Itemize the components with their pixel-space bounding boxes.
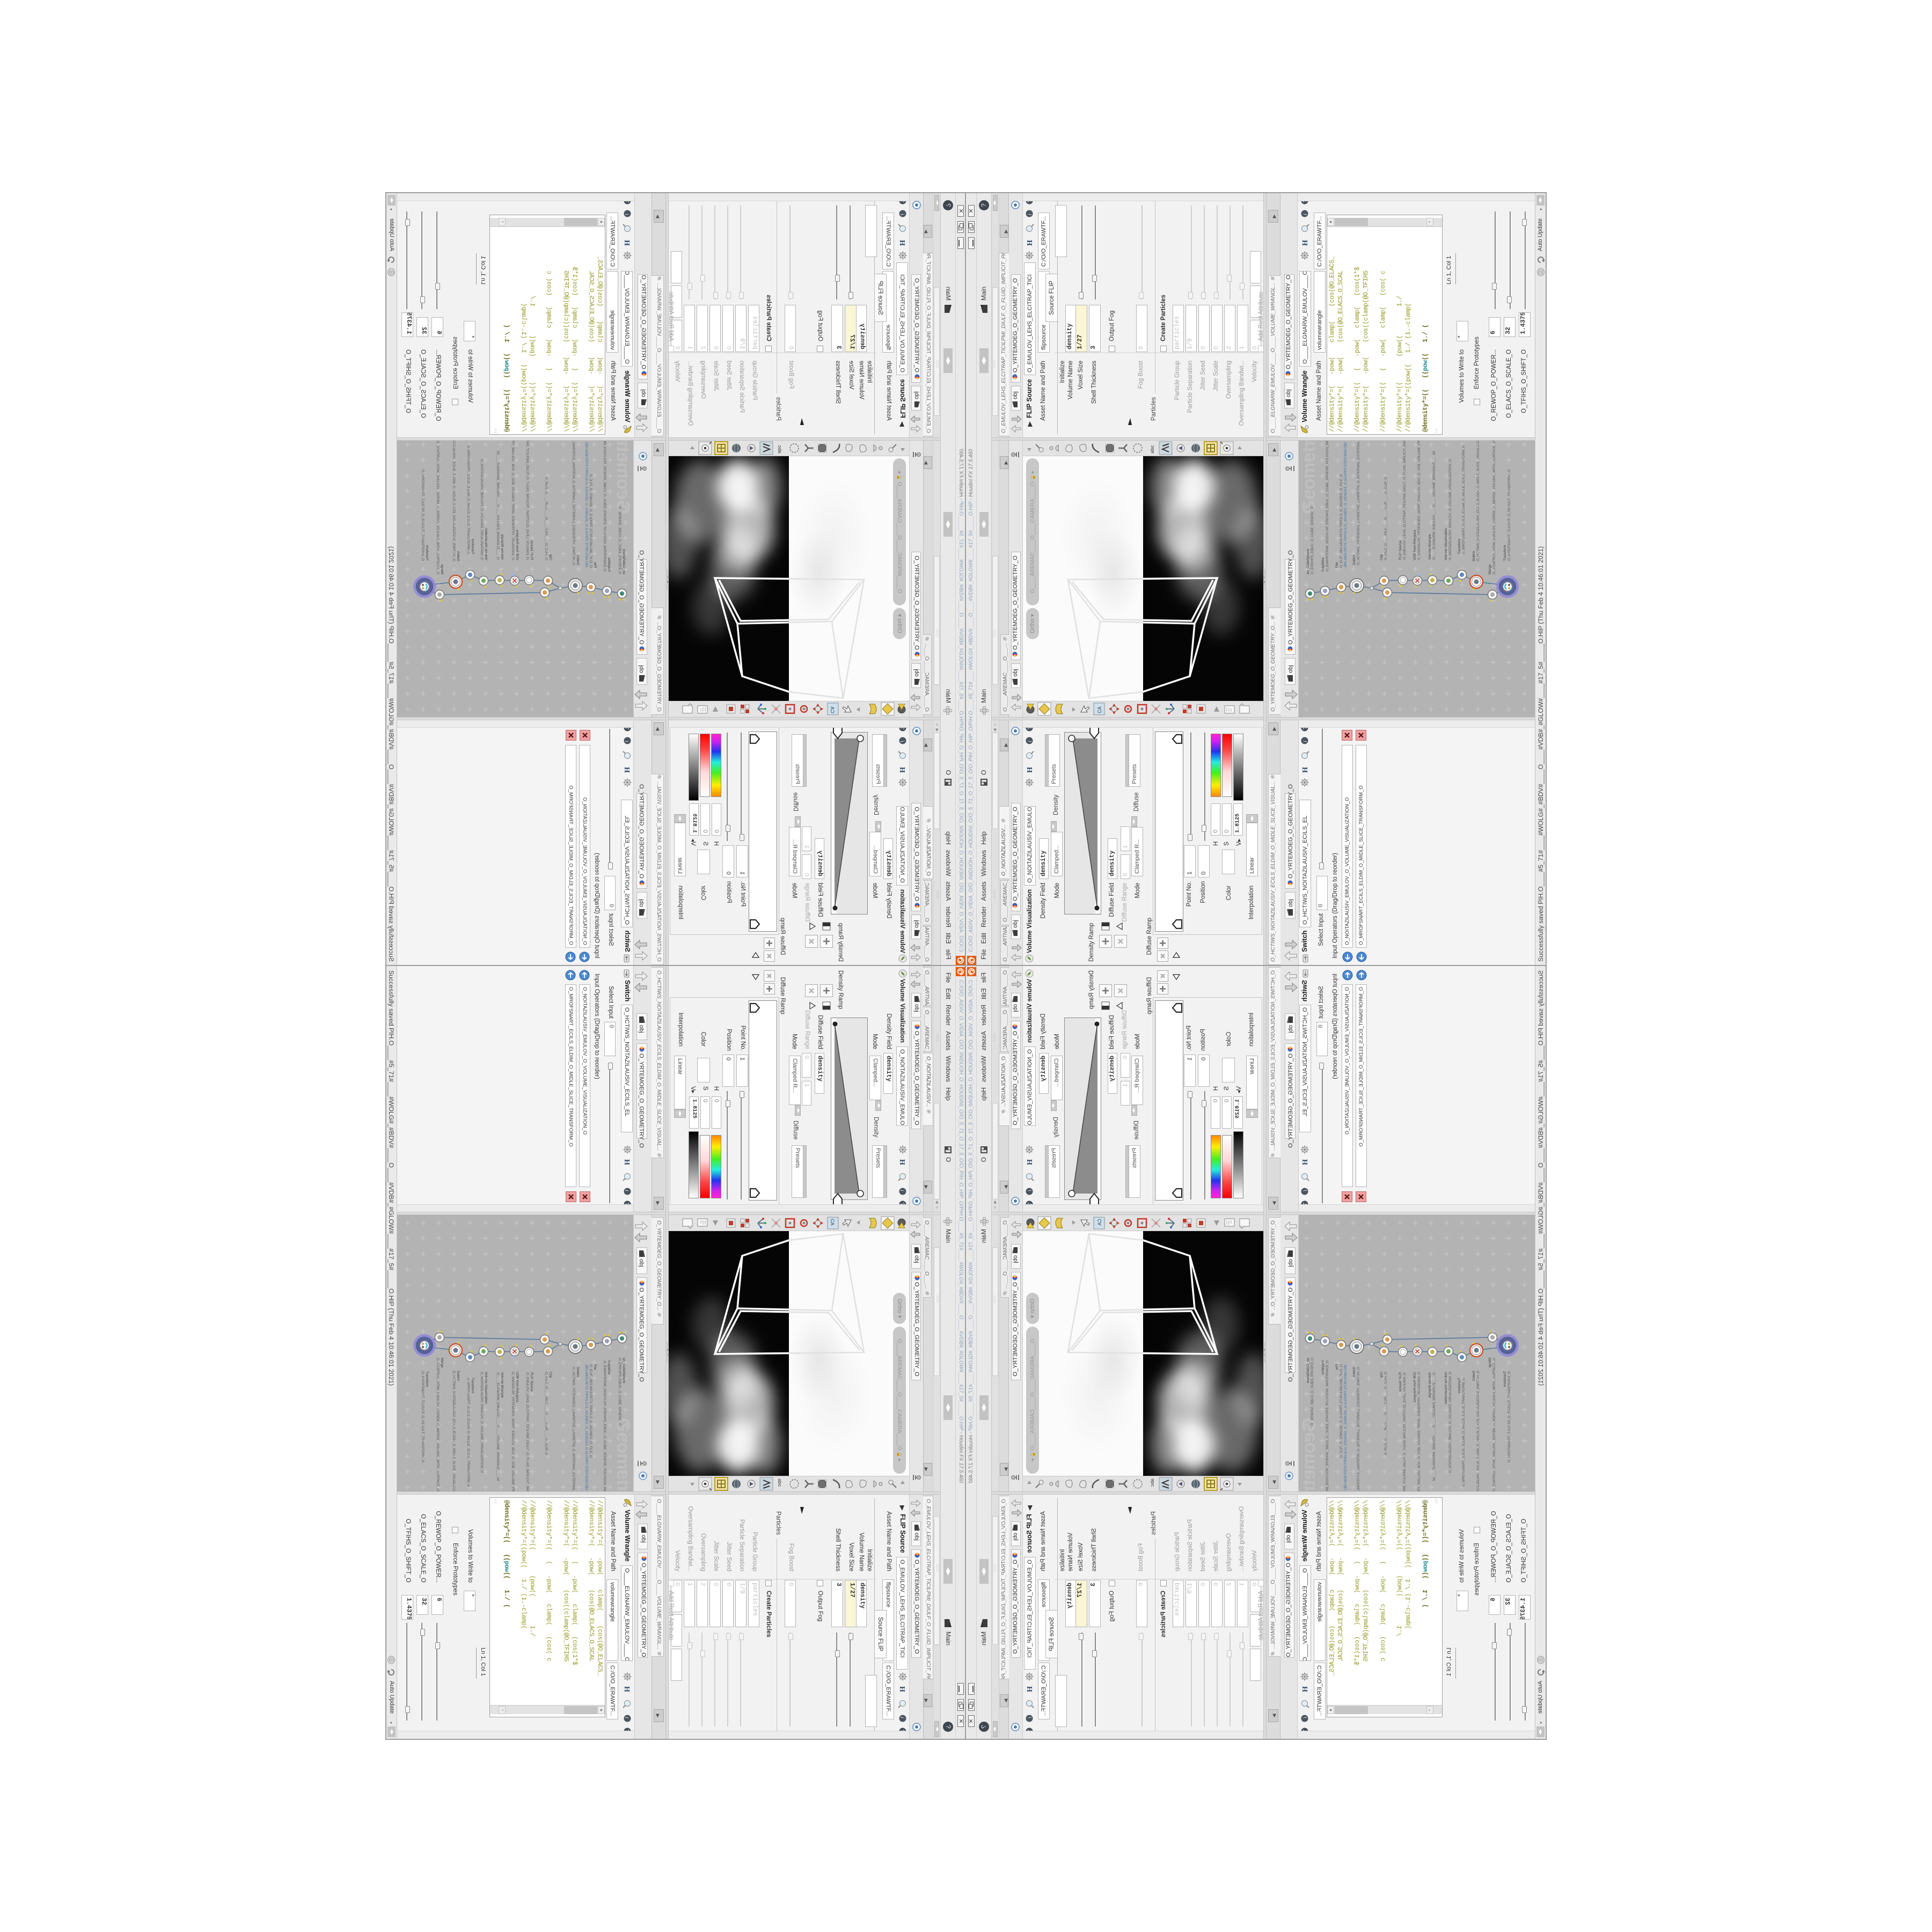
svg-text:Volume Wrangle: Volume Wrangle	[1428, 1372, 1432, 1398]
svg-text:H: H	[1026, 767, 1034, 773]
svg-text:H: H	[898, 767, 906, 773]
svg-text:O_HCTIWS_NOITAZILAUSIV_ECILS_E: O_HCTIWS_NOITAZILAUSIV_ECILS_ELDIM_O_MID…	[452, 1371, 456, 1491]
svg-text:O_MROFSNART_TLUSER_O_RESULT_TR: O_MROFSNART_TLUSER_O_RESULT_TRANSFORM_O	[1507, 1371, 1511, 1462]
svg-text:H: H	[1301, 240, 1309, 246]
svg-text:O_MROFSNART_ECILS_ELDIM_O_MIDL: O_MROFSNART_ECILS_ELDIM_O_MIDLE_SLICE_TR…	[1462, 445, 1466, 554]
svg-text:abc: abc	[1150, 1479, 1155, 1487]
svg-text:an_CubeSphere: an_CubeSphere	[622, 548, 626, 574]
svg-text:Geometry: Geometry	[613, 1418, 633, 1491]
svg-text:Volume Visualization: Volume Visualization	[484, 1372, 488, 1404]
svg-text:Switch: Switch	[1352, 554, 1356, 565]
svg-text:O_EMULOV_LEHS_ELCITRAP_TICILPM: O_EMULOV_LEHS_ELCITRAP_TICILPMI_DIULF_O_…	[525, 1372, 529, 1491]
svg-text:H: H	[1026, 240, 1034, 246]
svg-text:H: H	[1301, 767, 1309, 773]
svg-text:O_EMULOV_LEHS_ELCITRAP_TICILPM: O_EMULOV_LEHS_ELCITRAP_TICILPMI_DIULF_O_…	[1403, 441, 1407, 560]
svg-text:i: i	[1302, 1717, 1308, 1718]
svg-text:O_PILC_O____PILC____O____CLIP_: O_PILC_O____PILC____O____CLIP____O_CLIP_…	[1384, 1372, 1388, 1455]
svg-text:H: H	[898, 1686, 906, 1692]
svg-text:O_HCTIWS_NOITAZILAUSIV_ECILS_E: O_HCTIWS_NOITAZILAUSIV_ECILS_ELDIM_O_MID…	[1476, 1371, 1480, 1491]
svg-text:Clip: Clip	[548, 554, 552, 560]
svg-text:O_EMULOV_LEHS_ELCITRAP_TICILPM: O_EMULOV_LEHS_ELCITRAP_TICILPMI_DIULF_O_…	[1403, 1372, 1407, 1491]
svg-text:O____ELGNARW_EMULOV____O____VO: O____ELGNARW_EMULOV____O____VOLUME_WRANG…	[1432, 451, 1436, 560]
svg-text:JBO.MD3.PETS.TRPOLS.O_3SUNEG_O: JBO.MD3.PETS.TRPOLS.O_3SUNEG_O_GENUS3_O.…	[1344, 442, 1348, 568]
svg-text:Transform: Transform	[1503, 1371, 1507, 1387]
svg-text:File: File	[1335, 562, 1339, 568]
svg-text:Transform: Transform	[1458, 539, 1461, 554]
svg-text:Clip: Clip	[1380, 554, 1384, 560]
svg-text:File: File	[593, 1364, 597, 1370]
svg-text:i: i	[1027, 1190, 1033, 1191]
svg-text:i: i	[899, 1190, 905, 1191]
svg-text:O_MROFSNART_ECILS_ELDIM_O_MIDL: O_MROFSNART_ECILS_ELDIM_O_MIDLE_SLICE_TR…	[466, 445, 470, 554]
svg-text:O_MROFSNART_ECILS_ELDIM_O_MIDL: O_MROFSNART_ECILS_ELDIM_O_MIDLE_SLICE_TR…	[1462, 1378, 1466, 1487]
svg-text:abc: abc	[777, 1479, 782, 1487]
svg-text:H: H	[623, 240, 631, 246]
svg-text:O_MROFSNART_TLUSER_O_RESULT_TR: O_MROFSNART_TLUSER_O_RESULT_TRANSFORM_O	[1507, 470, 1511, 561]
svg-text:File: File	[1335, 1364, 1339, 1370]
svg-text:FLIP Source: FLIP Source	[1399, 1372, 1402, 1392]
svg-text:VDB from Polygons: VDB from Polygons	[515, 530, 519, 560]
svg-text:O_NOITAZILAUSIV_EMULOV_O_VOLUM: O_NOITAZILAUSIV_EMULOV_O_VOLUME_VISUALIZ…	[480, 459, 484, 560]
svg-text:Switch: Switch	[576, 1367, 580, 1378]
svg-text:PolyWire: PolyWire	[1321, 558, 1325, 572]
svg-text:i: i	[1302, 1190, 1308, 1191]
svg-text:O_SNOGILOP_YRTEMOEG_MORF_EMULO: O_SNOGILOP_YRTEMOEG_MORF_EMULOV_BDV_O_VD…	[1417, 441, 1421, 560]
svg-text:JBO.MD3.PETS.TRPOLS.O_3SUNEG_O: JBO.MD3.PETS.TRPOLS.O_3SUNEG_O_GENUS3_O.…	[584, 442, 588, 568]
svg-text:O_HCTIWS_YRTEMOEG_LANRETXE_LAN: O_HCTIWS_YRTEMOEG_LANRETXE_LANRETNI_O_IN…	[1357, 1367, 1360, 1491]
svg-text:O_EREHPS_EBUC_O_CUBE_SPHERE_O: O_EREHPS_EBUC_O_CUBE_SPHERE_O	[618, 1358, 621, 1425]
svg-text:H: H	[623, 1686, 631, 1692]
svg-text:i: i	[624, 1190, 630, 1191]
svg-text:O_ELIF_JBO.MD3.PETS.TRPOLS_O_3: O_ELIF_JBO.MD3.PETS.TRPOLS_O_3SUNEG_O_FI…	[589, 1364, 592, 1458]
svg-text:O_PILC_O____PILC____O____CLIP_: O_PILC_O____PILC____O____CLIP____O_CLIP_…	[544, 477, 548, 560]
svg-text:H: H	[1026, 1159, 1034, 1165]
svg-text:an_CubeSphere: an_CubeSphere	[622, 1358, 626, 1384]
svg-text:FLIP Source: FLIP Source	[530, 1372, 533, 1392]
svg-text:i: i	[899, 1717, 905, 1718]
svg-text:O_NOITAZILAUSIV_EMULOV_O_VOLUM: O_NOITAZILAUSIV_EMULOV_O_VOLUME_VISUALIZ…	[1448, 459, 1452, 560]
svg-text:O_EREHPS_EBUC_O_CUBE_SPHERE_O: O_EREHPS_EBUC_O_CUBE_SPHERE_O	[1311, 1358, 1314, 1425]
svg-text:i: i	[1027, 741, 1033, 742]
svg-text:O____ELGNARW_EMULOV____O____VO: O____ELGNARW_EMULOV____O____VOLUME_WRANG…	[496, 451, 500, 560]
svg-text:Volume Visualization: Volume Visualization	[484, 528, 488, 560]
svg-text:i: i	[624, 214, 630, 215]
svg-text:O_HCTIWS_NOITAZILAUSIV_ECILS_E: O_HCTIWS_NOITAZILAUSIV_ECILS_ELDIM_O_MID…	[1476, 441, 1480, 561]
svg-text:H: H	[623, 767, 631, 773]
svg-text:an_CubeSphere: an_CubeSphere	[1306, 548, 1310, 574]
svg-text:i: i	[1027, 1717, 1033, 1718]
svg-text:O_EMARFERIW_NOGYLOP_EREHPS_EBU: O_EMARFERIW_NOGYLOP_EREHPS_EBUC_O_CUBE_S…	[1326, 441, 1329, 572]
svg-text:Volume Visualization: Volume Visualization	[1444, 1372, 1448, 1404]
svg-text:CA: CA	[830, 1219, 835, 1226]
svg-text:O_EMARFERIW_NOGYLOP_EREHPS_EBU: O_EMARFERIW_NOGYLOP_EREHPS_EBUC_O_CUBE_S…	[603, 441, 606, 572]
svg-text:O_ECAFRUS_HTIW_EMULOV_EGREM_O_: O_ECAFRUS_HTIW_EMULOV_EGREM_O_MERGE_VOLU…	[436, 1358, 440, 1491]
svg-text:Geometry: Geometry	[1299, 1418, 1319, 1491]
svg-text:Volume Wrangle: Volume Wrangle	[1428, 534, 1432, 560]
svg-text:O_HCTIWS_YRTEMOEG_LANRETXE_LAN: O_HCTIWS_YRTEMOEG_LANRETXE_LANRETNI_O_IN…	[572, 1367, 575, 1491]
svg-text:i: i	[624, 741, 630, 742]
svg-text:PolyWire: PolyWire	[607, 1360, 611, 1374]
svg-text:Switch: Switch	[456, 551, 460, 561]
svg-text:H: H	[1301, 1686, 1309, 1692]
svg-text:O_NOITAZILAUSIV_EMULOV_O_VOLUM: O_NOITAZILAUSIV_EMULOV_O_VOLUME_VISUALIZ…	[1448, 1372, 1452, 1473]
svg-text:Merge: Merge	[1488, 564, 1492, 574]
svg-text:abc: abc	[777, 445, 782, 453]
svg-text:O_SNOGILOP_YRTEMOEG_MORF_EMULO: O_SNOGILOP_YRTEMOEG_MORF_EMULOV_BDV_O_VD…	[511, 441, 515, 560]
svg-text:O____ELGNARW_EMULOV____O____VO: O____ELGNARW_EMULOV____O____VOLUME_WRANG…	[1432, 1372, 1436, 1481]
svg-text:Switch: Switch	[456, 1371, 460, 1381]
svg-text:PolyWire: PolyWire	[607, 558, 611, 572]
svg-text:i: i	[1027, 214, 1033, 215]
svg-text:H: H	[898, 240, 906, 246]
svg-text:O_HCTIWS_YRTEMOEG_LANRETXE_LAN: O_HCTIWS_YRTEMOEG_LANRETXE_LANRETNI_O_IN…	[572, 441, 575, 565]
svg-text:H: H	[1301, 1159, 1309, 1165]
svg-text:O_EREHPS_EBUC_O_CUBE_SPHERE_O: O_EREHPS_EBUC_O_CUBE_SPHERE_O	[618, 507, 621, 574]
svg-text:Volume Wrangle: Volume Wrangle	[500, 1372, 504, 1398]
svg-text:O_MROFSNART_ECILS_ELDIM_O_MIDL: O_MROFSNART_ECILS_ELDIM_O_MIDLE_SLICE_TR…	[466, 1378, 470, 1487]
svg-text:VDB from Polygons: VDB from Polygons	[1413, 530, 1417, 560]
svg-text:FLIP Source: FLIP Source	[1399, 540, 1402, 560]
svg-text:O_MROFSNART_TLUSER_O_RESULT_TR: O_MROFSNART_TLUSER_O_RESULT_TRANSFORM_O	[421, 470, 425, 561]
svg-text:Transform: Transform	[471, 1378, 474, 1393]
svg-text:Merge: Merge	[440, 564, 444, 574]
svg-text:O_ECAFRUS_HTIW_EMULOV_EGREM_O_: O_ECAFRUS_HTIW_EMULOV_EGREM_O_MERGE_VOLU…	[1492, 441, 1496, 574]
svg-text:O_MROFSNART_TLUSER_O_RESULT_TR: O_MROFSNART_TLUSER_O_RESULT_TRANSFORM_O	[421, 1371, 425, 1462]
svg-text:Geometry: Geometry	[1299, 441, 1319, 514]
svg-text:VDB from Polygons: VDB from Polygons	[1413, 1372, 1417, 1402]
svg-text:O_NOITAZILAUSIV_EMULOV_O_VOLUM: O_NOITAZILAUSIV_EMULOV_O_VOLUME_VISUALIZ…	[480, 1372, 484, 1473]
svg-text:i: i	[899, 741, 905, 742]
svg-text:O_ECAFRUS_HTIW_EMULOV_EGREM_O_: O_ECAFRUS_HTIW_EMULOV_EGREM_O_MERGE_VOLU…	[436, 441, 440, 574]
svg-text:O_HCTIWS_NOITAZILAUSIV_ECILS_E: O_HCTIWS_NOITAZILAUSIV_ECILS_ELDIM_O_MID…	[452, 441, 456, 561]
svg-text:i: i	[624, 1717, 630, 1718]
svg-text:H: H	[623, 1159, 631, 1165]
svg-text:O_EMULOV_LEHS_ELCITRAP_TICILPM: O_EMULOV_LEHS_ELCITRAP_TICILPMI_DIULF_O_…	[525, 441, 529, 560]
svg-text:i: i	[899, 214, 905, 215]
svg-text:O_SNOGILOP_YRTEMOEG_MORF_EMULO: O_SNOGILOP_YRTEMOEG_MORF_EMULOV_BDV_O_VD…	[1417, 1372, 1421, 1491]
svg-text:Volume Visualization: Volume Visualization	[1444, 528, 1448, 560]
svg-text:VDB from Polygons: VDB from Polygons	[515, 1372, 519, 1402]
svg-text:O_ELIF_JBO.MD3.PETS.TRPOLS_O_3: O_ELIF_JBO.MD3.PETS.TRPOLS_O_3SUNEG_O_FI…	[1340, 1364, 1343, 1458]
svg-text:O_ELIF_JBO.MD3.PETS.TRPOLS_O_3: O_ELIF_JBO.MD3.PETS.TRPOLS_O_3SUNEG_O_FI…	[589, 474, 592, 568]
svg-text:FLIP Source: FLIP Source	[530, 540, 533, 560]
svg-text:Volume Wrangle: Volume Wrangle	[500, 534, 504, 560]
svg-text:PolyWire: PolyWire	[1321, 1360, 1325, 1374]
svg-text:O_ELIF_JBO.MD3.PETS.TRPOLS_O_3: O_ELIF_JBO.MD3.PETS.TRPOLS_O_3SUNEG_O_FI…	[1340, 474, 1343, 568]
svg-text:Transform: Transform	[471, 539, 474, 554]
svg-text:an_CubeSphere: an_CubeSphere	[1306, 1358, 1310, 1384]
svg-text:Transform: Transform	[1503, 545, 1507, 561]
svg-text:File: File	[593, 562, 597, 568]
svg-text:O_ECAFRUS_HTIW_EMULOV_EGREM_O_: O_ECAFRUS_HTIW_EMULOV_EGREM_O_MERGE_VOLU…	[1492, 1358, 1496, 1491]
svg-text:O____ELGNARW_EMULOV____O____VO: O____ELGNARW_EMULOV____O____VOLUME_WRANG…	[496, 1372, 500, 1481]
svg-text:CA: CA	[830, 706, 835, 713]
svg-text:O_EMARFERIW_NOGYLOP_EREHPS_EBU: O_EMARFERIW_NOGYLOP_EREHPS_EBUC_O_CUBE_S…	[1326, 1360, 1329, 1491]
svg-text:Transform: Transform	[1458, 1378, 1461, 1393]
svg-text:Switch: Switch	[1472, 551, 1476, 561]
svg-text:H: H	[1026, 1686, 1034, 1692]
svg-text:Clip: Clip	[1380, 1372, 1384, 1378]
svg-text:i: i	[1302, 214, 1308, 215]
svg-text:O_HCTIWS_YRTEMOEG_LANRETXE_LAN: O_HCTIWS_YRTEMOEG_LANRETXE_LANRETNI_O_IN…	[1357, 441, 1360, 565]
svg-text:Switch: Switch	[1472, 1371, 1476, 1381]
svg-text:Switch: Switch	[1352, 1367, 1356, 1378]
svg-text:O_EREHPS_EBUC_O_CUBE_SPHERE_O: O_EREHPS_EBUC_O_CUBE_SPHERE_O	[1311, 507, 1314, 574]
svg-text:i: i	[1302, 741, 1308, 742]
svg-text:O_PILC_O____PILC____O____CLIP_: O_PILC_O____PILC____O____CLIP____O_CLIP_…	[1384, 477, 1388, 560]
svg-text:Merge: Merge	[1488, 1358, 1492, 1368]
svg-text:Clip: Clip	[548, 1372, 552, 1378]
svg-text:CA: CA	[1097, 1219, 1102, 1226]
svg-text:CA: CA	[1097, 706, 1102, 713]
svg-text:JBO.MD3.PETS.TRPOLS.O_3SUNEG_O: JBO.MD3.PETS.TRPOLS.O_3SUNEG_O_GENUS3_O.…	[1344, 1364, 1348, 1490]
svg-text:Geometry: Geometry	[613, 441, 633, 514]
svg-text:Switch: Switch	[576, 554, 580, 565]
svg-text:JBO.MD3.PETS.TRPOLS.O_3SUNEG_O: JBO.MD3.PETS.TRPOLS.O_3SUNEG_O_GENUS3_O.…	[584, 1364, 588, 1490]
svg-text:O_PILC_O____PILC____O____CLIP_: O_PILC_O____PILC____O____CLIP____O_CLIP_…	[544, 1372, 548, 1455]
svg-text:Transform: Transform	[425, 545, 429, 561]
svg-text:Transform: Transform	[425, 1371, 429, 1387]
svg-text:H: H	[898, 1159, 906, 1165]
svg-text:Merge: Merge	[440, 1358, 444, 1368]
svg-text:O_EMARFERIW_NOGYLOP_EREHPS_EBU: O_EMARFERIW_NOGYLOP_EREHPS_EBUC_O_CUBE_S…	[603, 1360, 606, 1491]
svg-text:abc: abc	[1150, 445, 1155, 453]
svg-text:O_SNOGILOP_YRTEMOEG_MORF_EMULO: O_SNOGILOP_YRTEMOEG_MORF_EMULOV_BDV_O_VD…	[511, 1372, 515, 1491]
